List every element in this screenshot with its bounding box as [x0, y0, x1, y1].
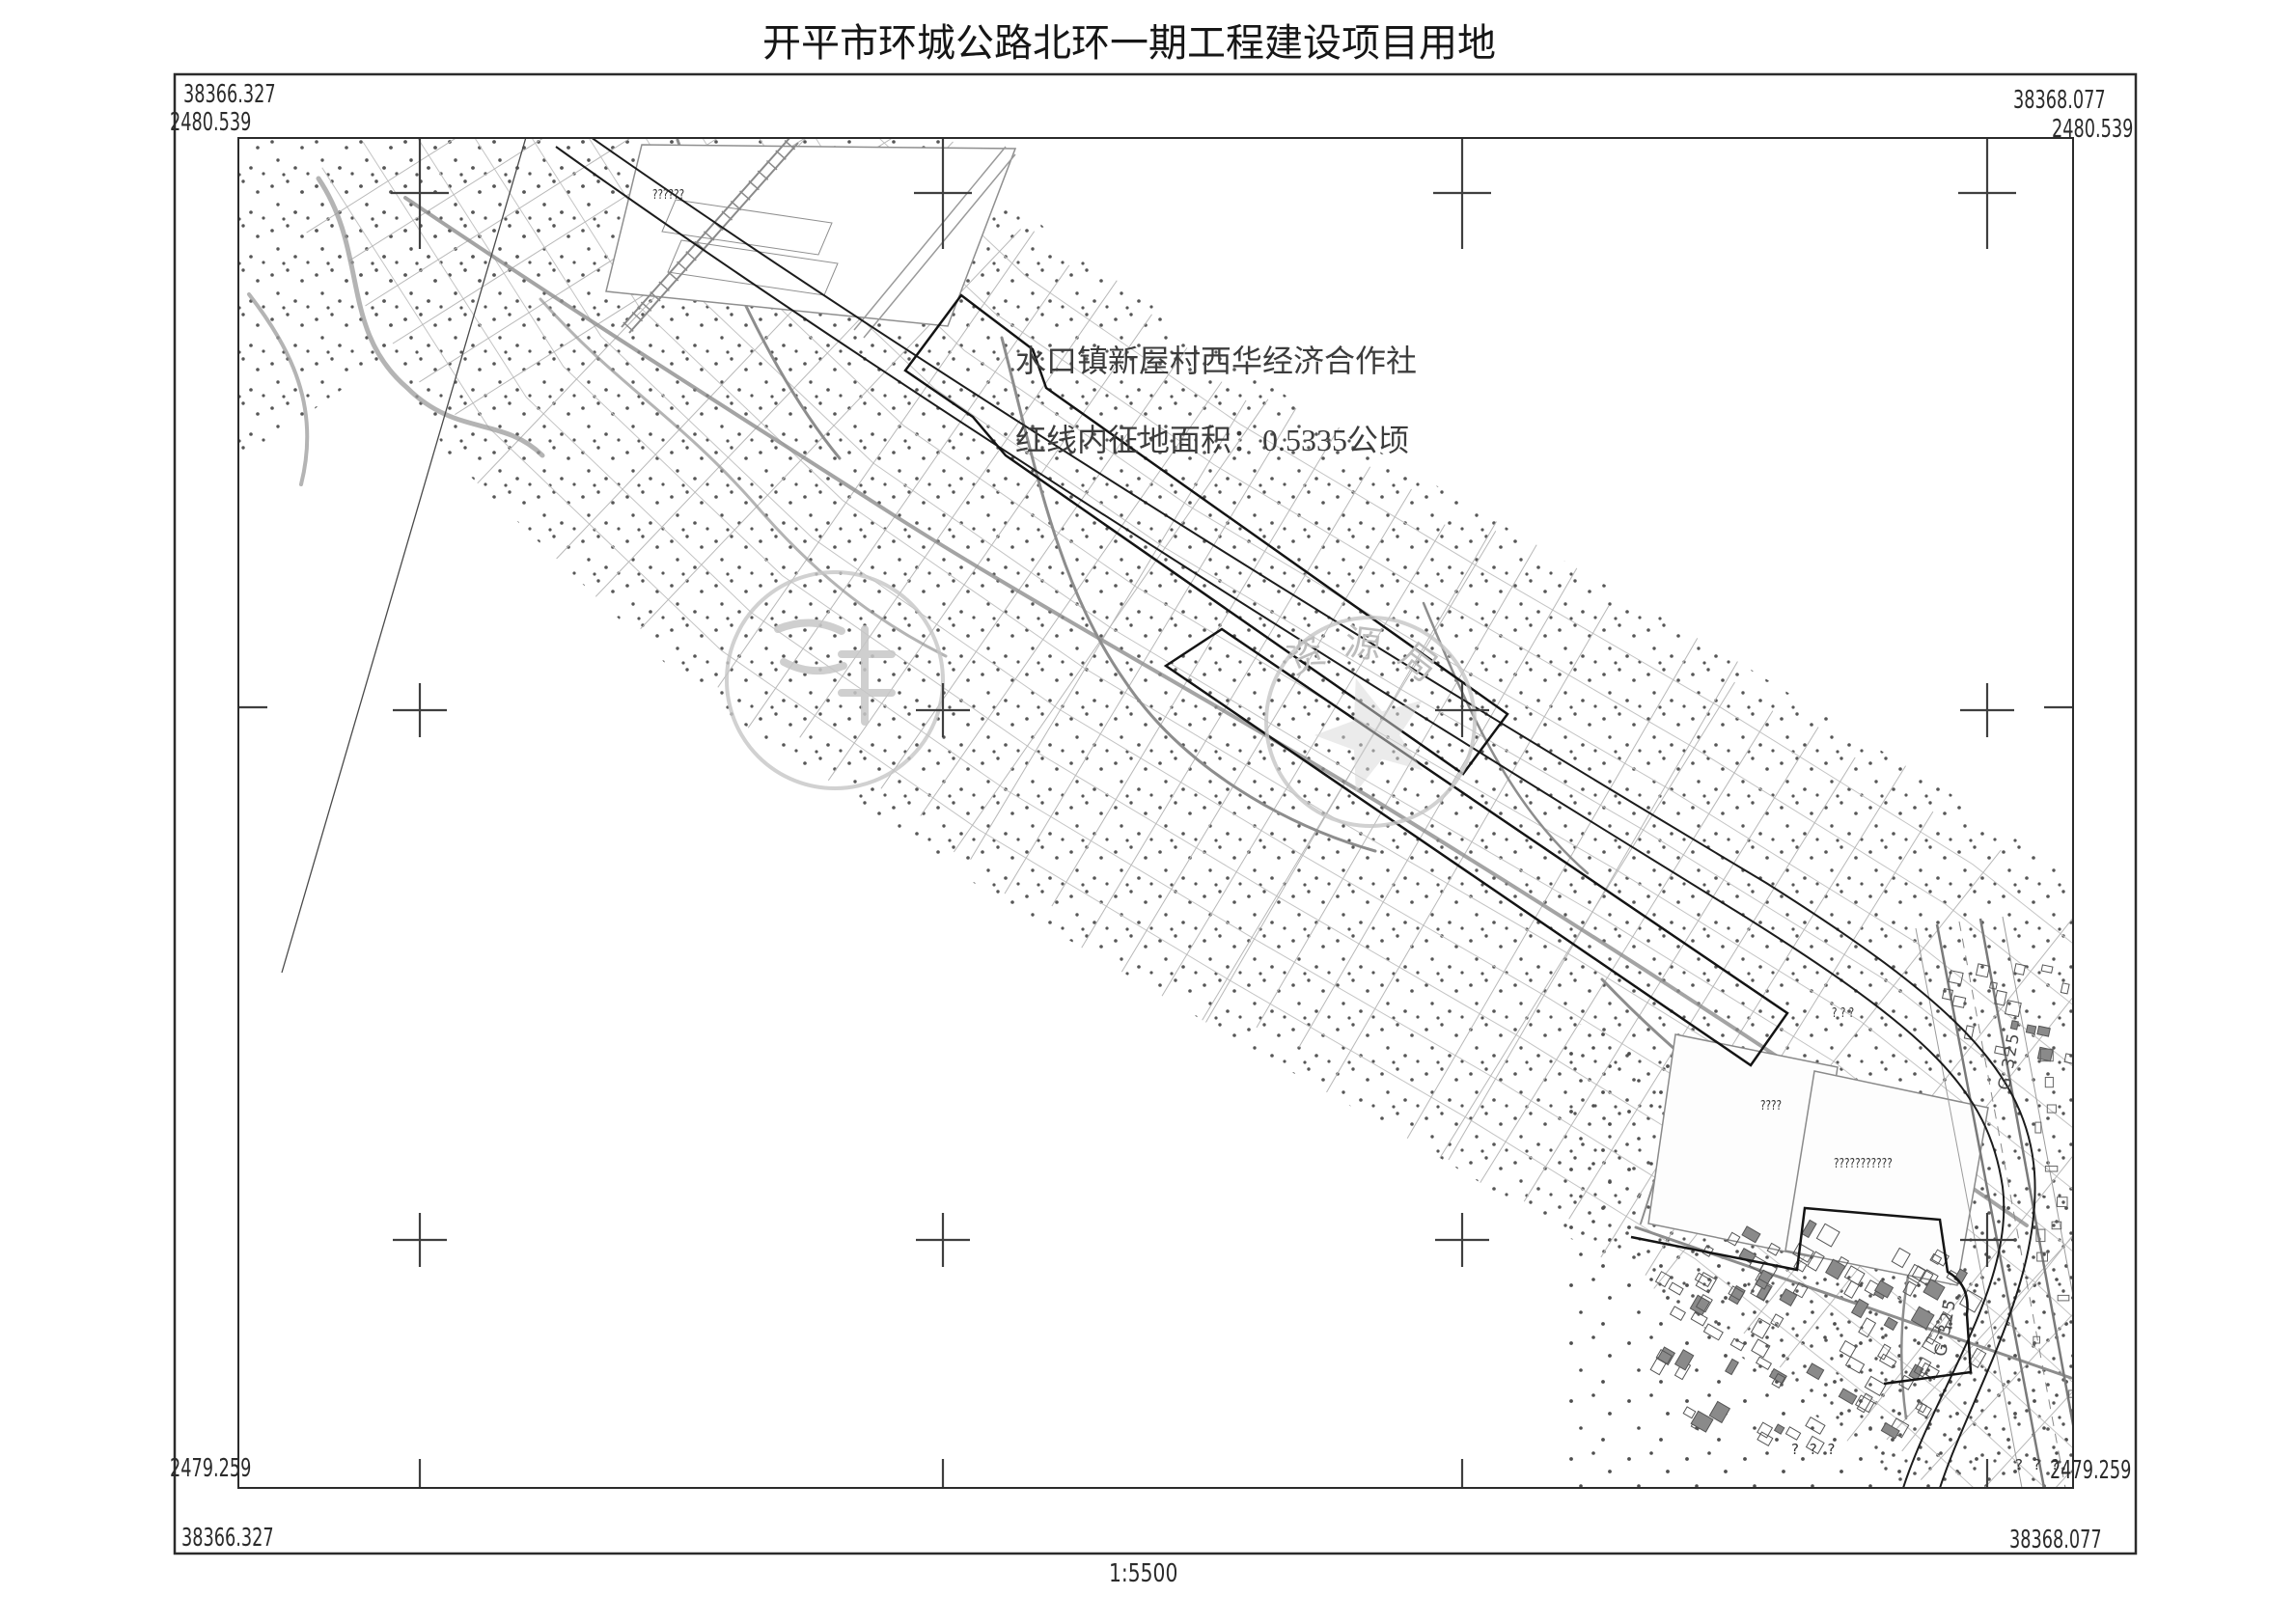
coord-bottom-right-easting: 38368.077: [2009, 1527, 2102, 1555]
urban-parcel: [1785, 1071, 1988, 1285]
page-title: 开平市环城公路北环一期工程建设项目用地: [762, 21, 1496, 66]
map-content: 资源局: [238, 0, 2296, 1623]
coord-bottom-left-easting: 38366.327: [181, 1525, 274, 1554]
coord-top-left-easting: 38366.327: [183, 81, 276, 110]
urban-building: [2010, 1021, 2018, 1030]
garbled-label-roadside: ? ? ?: [1832, 1007, 1854, 1022]
coord-bottom-left-northing: 2479.259: [170, 1455, 251, 1484]
urban-building: [2026, 1025, 2035, 1033]
scale-label: 1:5500: [1109, 1560, 1177, 1589]
urban-building: [2037, 1026, 2050, 1036]
coord-top-right-easting: 38368.077: [2013, 87, 2106, 116]
parcel-line: [2082, 1222, 2296, 1614]
garbled-label-village: ? ? ?: [1791, 1442, 1838, 1458]
garbled-label-corner: ? ? ?: [2015, 1457, 2061, 1473]
annotation-area: 红线内征地面积：0.5335公顷: [1015, 423, 1409, 458]
map-sheet: 资源局 开平市环城公路北环一期工程建设项目用地 38366.327 2480.5…: [0, 0, 2296, 1623]
annotation-owner: 水口镇新屋村西华经济合作社: [1015, 344, 1417, 379]
coord-top-left-northing: 2480.539: [170, 109, 251, 138]
garbled-label-factory: ??????: [652, 189, 684, 204]
garbled-label-parcel: ????: [1760, 1100, 1782, 1114]
coord-bottom-right-northing: 2479.259: [2050, 1457, 2131, 1486]
coord-top-right-northing: 2480.539: [2052, 116, 2133, 145]
map-canvas: 资源局: [0, 0, 2296, 1623]
parcel-line: [2111, 1247, 2296, 1623]
garbled-label-parcel-long: ???????????: [1834, 1158, 1893, 1172]
urban-building: [2073, 959, 2087, 975]
